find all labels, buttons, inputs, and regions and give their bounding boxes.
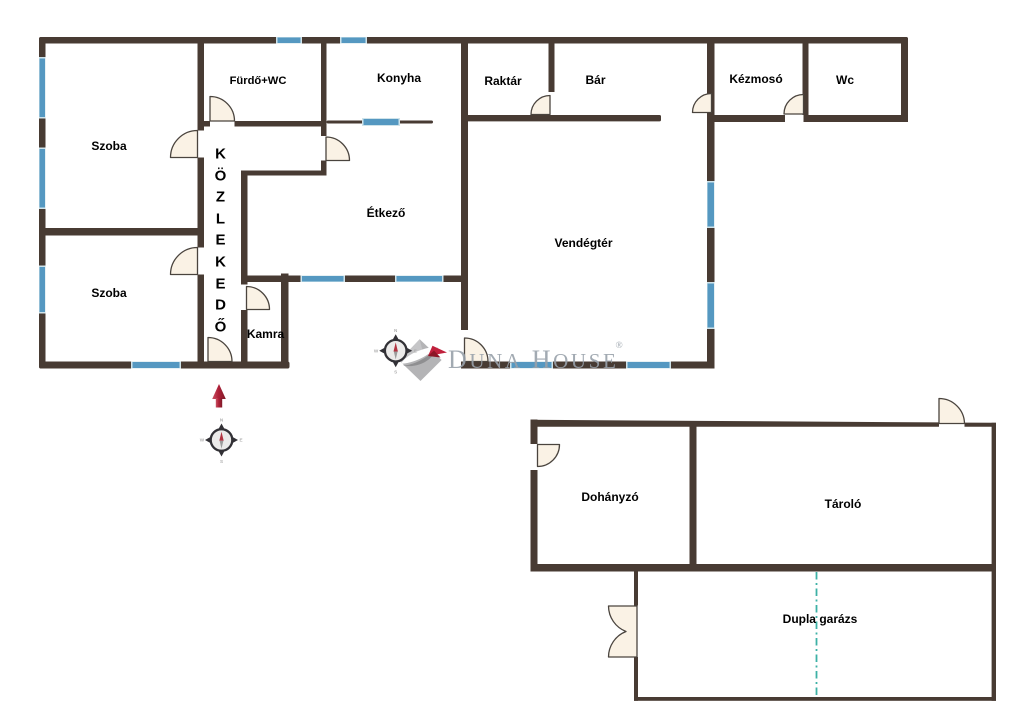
svg-text:S: S — [394, 370, 397, 375]
svg-text:S: S — [220, 459, 223, 464]
svg-text:N: N — [394, 328, 398, 333]
svg-text:W: W — [200, 438, 205, 443]
svg-text:E: E — [240, 438, 243, 443]
svg-text:W: W — [374, 348, 379, 353]
svg-text:N: N — [220, 417, 224, 422]
svg-text:E: E — [414, 348, 417, 353]
